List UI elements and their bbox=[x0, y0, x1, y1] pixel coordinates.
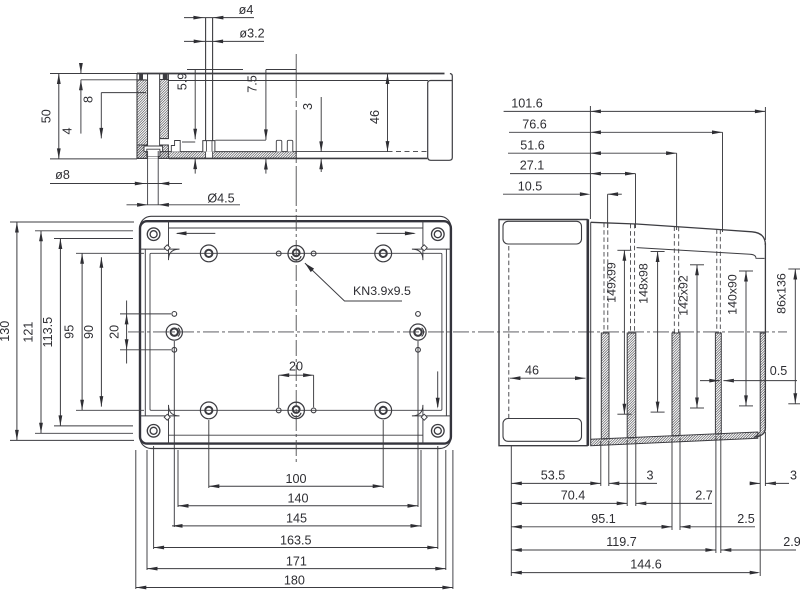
svg-text:3: 3 bbox=[790, 469, 797, 483]
svg-text:2.7: 2.7 bbox=[695, 489, 713, 503]
svg-text:8: 8 bbox=[82, 96, 96, 103]
svg-text:95: 95 bbox=[63, 325, 77, 339]
svg-text:KN3.9x9.5: KN3.9x9.5 bbox=[353, 284, 411, 298]
svg-text:180: 180 bbox=[284, 573, 305, 587]
svg-text:2.9: 2.9 bbox=[783, 535, 800, 549]
svg-text:51.6: 51.6 bbox=[520, 138, 545, 152]
svg-text:53.5: 53.5 bbox=[541, 469, 566, 483]
svg-text:4: 4 bbox=[61, 127, 75, 134]
svg-text:90: 90 bbox=[82, 325, 96, 339]
svg-text:70.4: 70.4 bbox=[561, 489, 586, 503]
svg-text:101.6: 101.6 bbox=[511, 97, 543, 111]
svg-text:2.5: 2.5 bbox=[737, 512, 755, 526]
svg-text:113.5: 113.5 bbox=[41, 317, 55, 348]
svg-text:20: 20 bbox=[108, 325, 122, 339]
svg-text:149x99: 149x99 bbox=[605, 262, 619, 303]
svg-text:46: 46 bbox=[525, 363, 539, 377]
svg-text:171: 171 bbox=[286, 554, 307, 568]
svg-text:46: 46 bbox=[368, 110, 382, 124]
svg-text:ø3.2: ø3.2 bbox=[239, 27, 264, 41]
svg-text:145: 145 bbox=[286, 512, 307, 526]
svg-text:10.5: 10.5 bbox=[518, 179, 543, 193]
svg-text:119.7: 119.7 bbox=[606, 535, 637, 549]
svg-text:130: 130 bbox=[0, 321, 12, 342]
svg-text:86x136: 86x136 bbox=[775, 273, 789, 314]
svg-text:0.5: 0.5 bbox=[770, 364, 788, 378]
svg-text:100: 100 bbox=[285, 472, 306, 486]
svg-text:ø4: ø4 bbox=[239, 3, 254, 17]
svg-text:95.1: 95.1 bbox=[591, 512, 616, 526]
svg-text:5.9: 5.9 bbox=[176, 73, 190, 91]
svg-text:3: 3 bbox=[301, 103, 315, 110]
svg-text:163.5: 163.5 bbox=[280, 533, 312, 547]
svg-text:ø8: ø8 bbox=[55, 168, 70, 182]
svg-text:121: 121 bbox=[22, 322, 36, 343]
svg-text:27.1: 27.1 bbox=[520, 159, 545, 173]
svg-text:50: 50 bbox=[40, 109, 54, 123]
svg-text:76.6: 76.6 bbox=[522, 117, 547, 131]
svg-text:3: 3 bbox=[646, 469, 653, 483]
svg-text:140x90: 140x90 bbox=[726, 274, 740, 315]
svg-text:144.6: 144.6 bbox=[630, 558, 662, 572]
svg-text:Ø4.5: Ø4.5 bbox=[207, 192, 234, 206]
svg-text:140: 140 bbox=[287, 492, 308, 506]
svg-text:20: 20 bbox=[289, 359, 303, 373]
svg-text:7.5: 7.5 bbox=[246, 75, 260, 93]
svg-text:142x92: 142x92 bbox=[677, 275, 691, 316]
svg-text:148x98: 148x98 bbox=[637, 263, 651, 304]
